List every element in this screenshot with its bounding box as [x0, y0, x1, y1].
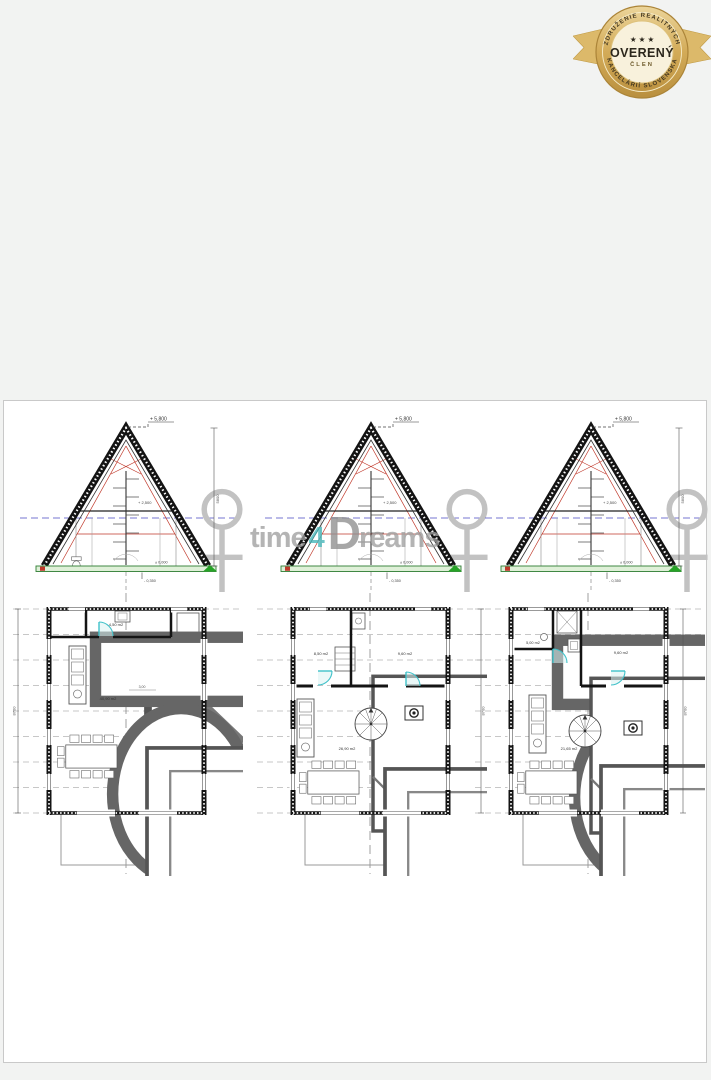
closet — [177, 613, 199, 634]
kitchen-counter — [529, 695, 546, 753]
human-figure-icon — [666, 492, 707, 592]
loft-level-label: + 2,500 — [383, 500, 397, 505]
base-level-label: - 0,350 — [144, 579, 156, 583]
spiral-staircase — [569, 715, 601, 747]
loft-level-label: + 2,500 — [138, 500, 152, 505]
svg-text:5800: 5800 — [680, 494, 685, 504]
badge-title: OVERENÝ — [610, 45, 674, 60]
base-level-label: - 0,350 — [389, 579, 401, 583]
ridge-level-label: + 5,800 — [150, 417, 167, 423]
door-swing-icon — [406, 672, 420, 686]
svg-text:8700: 8700 — [12, 706, 17, 716]
floor-level-label: ± 0,000 — [155, 561, 168, 565]
washbasin — [541, 634, 548, 641]
floor-level-label: ± 0,000 — [620, 561, 633, 565]
dining-table-set — [300, 761, 360, 804]
interior — [58, 611, 244, 876]
badge-stars: ★ ★ ★ — [630, 35, 655, 44]
area-label: 9,60 m2 — [398, 651, 413, 656]
dimension-label: 3,00 — [139, 685, 146, 689]
section-drawing: + 5,800 + 2,500 ± 0,000 - 0,350 5800 — [20, 417, 244, 593]
sink — [352, 613, 365, 629]
verified-badge: ZDRUŽENIE REALITNÝCH KANCELÁRIÍ SLOVENSK… — [573, 2, 711, 106]
area-label: 26,90 m2 — [339, 746, 356, 751]
stove-icon — [405, 706, 423, 720]
svg-text:8700: 8700 — [683, 706, 688, 716]
floor-level-label: ± 0,000 — [400, 561, 413, 565]
drawing-sheet: + 5,800 + 2,500 ± 0,000 - 0,350 5800 — [3, 400, 707, 1063]
interior — [518, 611, 706, 876]
area-label: 8,50 m2 — [314, 651, 329, 656]
aframe-section-3: + 5,800 + 2,500 ± 0,000 - 0,350 5800 — [479, 414, 709, 592]
ridge-level-label: + 5,800 — [395, 417, 412, 423]
area-label: 9,60 m2 — [614, 650, 629, 655]
aframe-section-1: + 5,800 + 2,500 ± 0,000 - 0,350 5800 — [14, 414, 244, 592]
dining-table-set — [518, 761, 578, 804]
kitchen-counter — [69, 646, 86, 704]
badge-subtitle: ČLEN — [630, 61, 654, 68]
side-dimension: 8700 — [12, 609, 22, 813]
area-label: 21,65 m2 — [561, 746, 578, 751]
sink — [568, 639, 580, 652]
listing-image: ZDRUŽENIE REALITNÝCH KANCELÁRIÍ SLOVENSK… — [0, 0, 711, 1080]
aframe-section-2: + 5,800 + 2,500 ± 0,000 - 0,350 — [259, 414, 489, 592]
ground-base — [36, 566, 216, 572]
area-label: 4,50 m2 — [109, 622, 124, 627]
stove-icon — [624, 721, 642, 735]
human-figure-icon — [201, 492, 242, 592]
kitchen-counter — [297, 699, 314, 757]
area-label: 40,90 m2 — [100, 696, 117, 701]
ridge-level-label: + 5,800 — [615, 417, 632, 423]
floor-plan-3: 5,00 m2 9,60 m2 21,65 m2 8700 — [473, 591, 705, 876]
svg-text:5800: 5800 — [215, 494, 220, 504]
area-label: 5,00 m2 — [526, 641, 540, 645]
loft-level-label: + 2,500 — [603, 500, 617, 505]
floor-plan-1: 4,50 m2 40,90 m2 3,00 8700 — [11, 591, 243, 876]
spiral-staircase — [355, 708, 387, 740]
base-level-label: - 0,350 — [609, 579, 621, 583]
door-swing-icon — [318, 671, 332, 685]
dining-table-set — [58, 735, 118, 778]
sofa — [601, 766, 705, 876]
sofa — [385, 769, 487, 876]
floor-plan-2: 8,50 m2 9,60 m2 26,90 m2 8700 — [255, 591, 487, 876]
